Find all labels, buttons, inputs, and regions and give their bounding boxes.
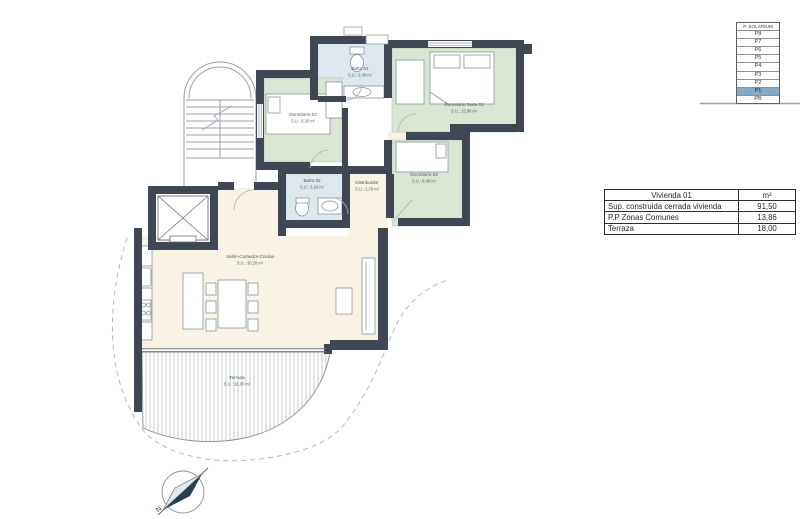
row-label-terraza: Terraza [605, 224, 738, 234]
label-salon: Salón-Comedor-Cocina [226, 254, 274, 259]
area-bano-01: S.U.: 2,40 m² [348, 73, 373, 78]
row-value-zonas-comunes: 13,86 [738, 212, 795, 222]
label-bano-02: Baño 02 [303, 178, 321, 183]
label-dormitorio-02: Dormitorio 02 [289, 112, 317, 117]
label-suite-01: Dormitorio Suite 01 [444, 102, 484, 107]
area-suite-01: S.U.: 13,90 m² [451, 109, 478, 114]
floor-row-p4[interactable]: P4 [737, 62, 779, 70]
floor-selector: P. SOLARIUM P8 P7 P6 P5 P4 P3 P2 P1 PB [736, 22, 780, 104]
compass-icon: N [155, 468, 208, 515]
table-row: Terraza 18,00 [605, 223, 795, 234]
row-label-zonas-comunes: P.P Zonas Comunes [605, 212, 738, 222]
table-unit: m² [738, 190, 795, 200]
floor-row-p6[interactable]: P6 [737, 46, 779, 54]
elevator [158, 196, 208, 242]
area-summary-table: Vivienda 01 m² Sup. construida cerrada v… [604, 189, 796, 235]
label-bano-01: Baño 01 [351, 66, 369, 71]
floor-row-p8[interactable]: P8 [737, 30, 779, 38]
area-dormitorio-02: S.U.: 9,30 m² [291, 119, 316, 124]
floor-row-p7[interactable]: P7 [737, 38, 779, 46]
table-title: Vivienda 01 [605, 190, 738, 200]
stairwell [184, 62, 256, 188]
row-value-terraza: 18,00 [738, 224, 795, 234]
compass-north-label: N [155, 505, 163, 514]
floor-row-p3[interactable]: P3 [737, 71, 779, 79]
row-value-superficie: 91,50 [738, 201, 795, 211]
row-label-superficie: Sup. construida cerrada vivienda [605, 201, 738, 211]
floor-row-p5[interactable]: P5 [737, 54, 779, 62]
area-distribuidor: S.U.: 2,70 m² [355, 187, 380, 192]
label-terraza: Terraza [229, 375, 245, 380]
table-row: Sup. construida cerrada vivienda 91,50 [605, 200, 795, 211]
label-distribuidor: Distribuidor [355, 180, 379, 185]
area-dormitorio-03: S.U.: 9,40 m² [412, 179, 437, 184]
floor-row-solarium[interactable]: P. SOLARIUM [737, 23, 779, 30]
table-header-row: Vivienda 01 m² [605, 190, 795, 200]
floor-row-pb[interactable]: PB [737, 95, 779, 103]
area-terraza: S.U.: 18,00 m² [224, 382, 251, 387]
area-bano-02: S.U.: 3,20 m² [300, 185, 325, 190]
floorplan-page: Baño 01 S.U.: 2,40 m² Dormitorio Suite 0… [0, 0, 800, 519]
floor-plan-drawing: Baño 01 S.U.: 2,40 m² Dormitorio Suite 0… [0, 0, 800, 519]
floor-row-p2[interactable]: P2 [737, 79, 779, 87]
floor-row-p1-selected[interactable]: P1 [737, 87, 779, 95]
table-row: P.P Zonas Comunes 13,86 [605, 211, 795, 222]
label-dormitorio-03: Dormitorio 03 [410, 172, 438, 177]
area-salon: S.U.: 30,20 m² [237, 261, 264, 266]
terrace-area [142, 352, 330, 442]
